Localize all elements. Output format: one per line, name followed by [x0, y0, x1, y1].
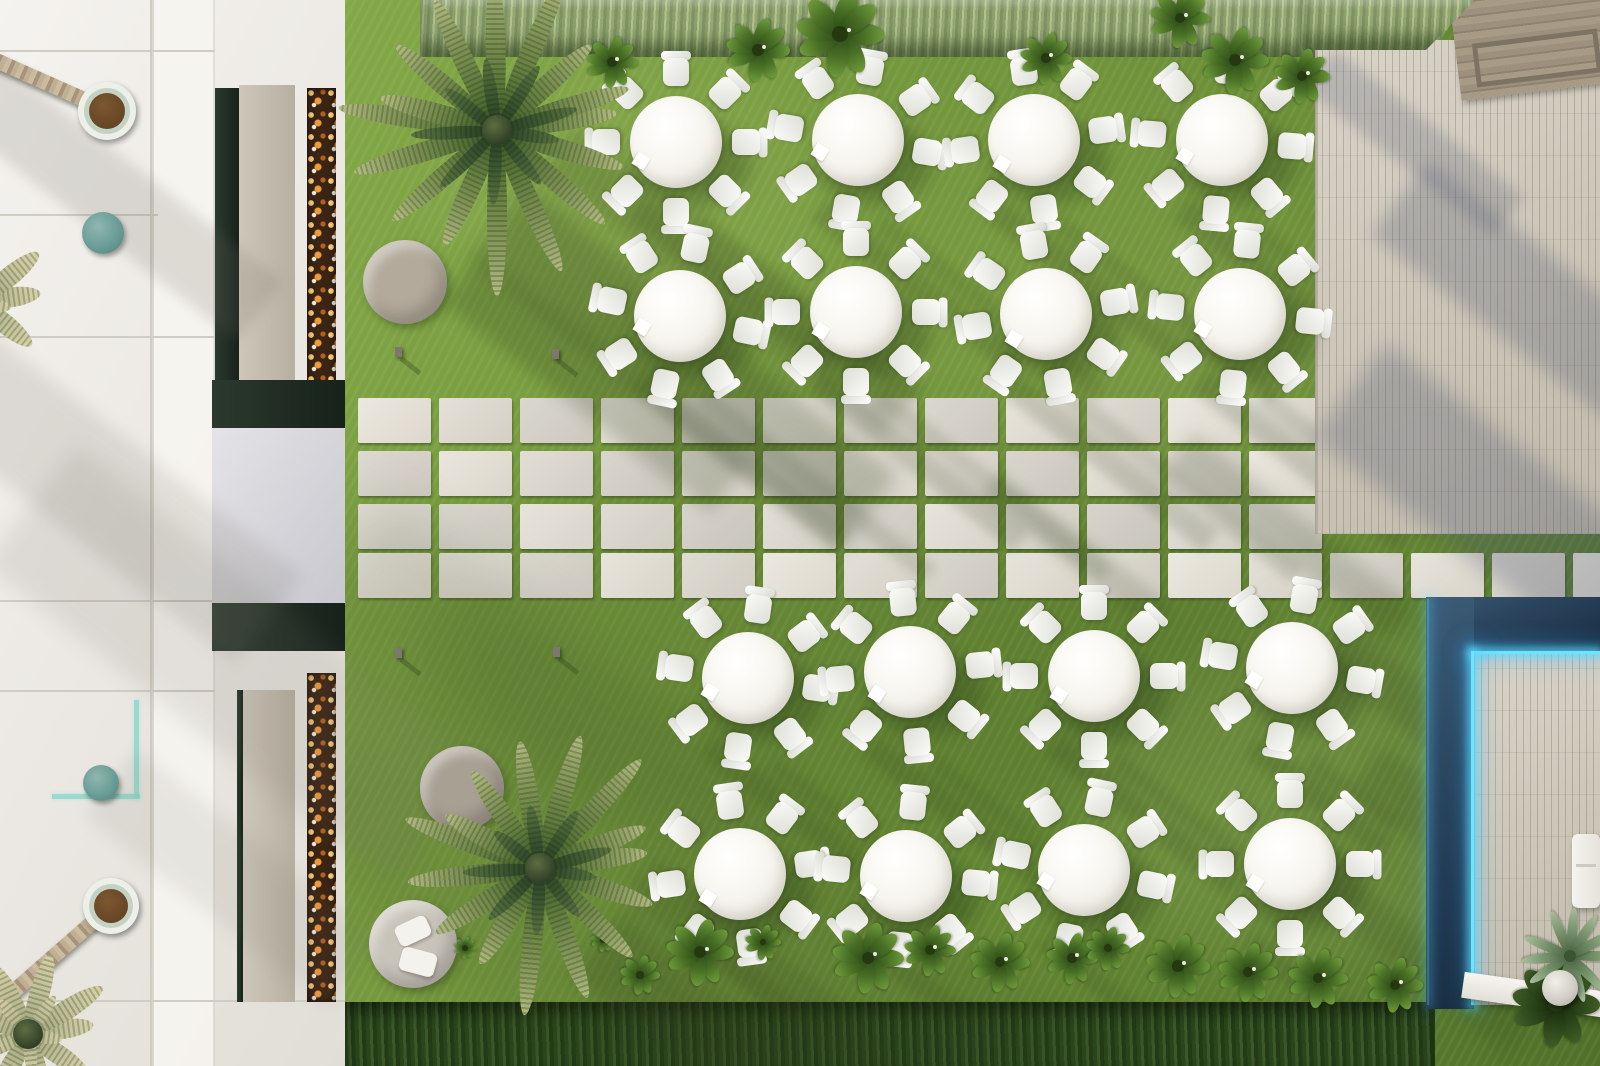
void-slot: [212, 380, 345, 428]
bush-center: [462, 945, 468, 951]
banquet-table: [812, 94, 904, 186]
bush-flower: [1004, 957, 1008, 961]
chair: [1346, 851, 1374, 877]
palm-crown: [13, 1019, 43, 1049]
chair: [1202, 195, 1230, 225]
chair: [663, 198, 689, 226]
stool: [82, 212, 124, 254]
banquet-table: [1244, 818, 1336, 910]
chair: [1010, 663, 1038, 689]
planter-soil: [89, 93, 125, 129]
paver: [358, 451, 431, 496]
chair: [1083, 785, 1114, 818]
bush-flower: [847, 28, 851, 32]
paver: [925, 553, 998, 598]
chair: [1277, 920, 1303, 948]
bush-flower: [1399, 980, 1403, 984]
paver: [439, 398, 512, 443]
chair: [732, 129, 760, 155]
banquet-table: [1038, 824, 1130, 916]
chair: [888, 587, 917, 618]
chair: [1099, 287, 1131, 317]
bush-center: [636, 971, 643, 978]
chair: [911, 137, 943, 167]
chair: [1207, 641, 1239, 671]
paver: [439, 451, 512, 496]
planter-soil: [94, 889, 128, 923]
ground-light: [395, 347, 402, 357]
banquet-table: [864, 626, 956, 718]
chair: [1206, 851, 1234, 877]
chair: [1150, 663, 1178, 689]
chair: [1265, 721, 1295, 753]
chaise-lounge: [1572, 834, 1600, 908]
paver: [520, 451, 593, 496]
chair: [1218, 368, 1247, 399]
paver: [520, 504, 593, 549]
chair: [964, 650, 995, 679]
chair: [772, 299, 800, 325]
pool-led-strip: [1427, 599, 1429, 1005]
chair: [949, 135, 980, 165]
paver: [601, 553, 674, 598]
plant-pot: [1542, 970, 1578, 1006]
chair: [715, 789, 745, 820]
bush-center: [832, 26, 848, 42]
paver: [601, 504, 674, 549]
deck-edge: [1315, 40, 1318, 534]
chair: [1081, 732, 1107, 760]
banquet-table: [634, 270, 726, 362]
chair: [663, 58, 689, 86]
chair: [899, 791, 928, 822]
banquet-table: [1048, 630, 1140, 722]
bush-flower: [1240, 55, 1244, 59]
chaise-seam: [1576, 864, 1596, 867]
chair: [843, 228, 869, 256]
chair: [679, 231, 710, 264]
paver: [1168, 553, 1241, 598]
palm-crown: [482, 115, 512, 145]
chair: [960, 869, 991, 898]
bush-flower: [1306, 71, 1310, 75]
banquet-table: [1176, 94, 1268, 186]
bush-flower: [1252, 967, 1256, 971]
paver: [358, 398, 431, 443]
chair: [743, 593, 773, 624]
bush-center: [1104, 944, 1112, 952]
stool: [83, 765, 119, 801]
paver: [682, 504, 755, 549]
bush-flower: [705, 947, 709, 951]
palm-crown: [525, 853, 555, 883]
banquet-table: [1194, 268, 1286, 360]
ground-light: [553, 647, 560, 657]
banquet-table: [630, 96, 722, 188]
pool-water: [1426, 597, 1474, 1009]
ground-light: [395, 648, 402, 658]
chair: [1137, 120, 1167, 148]
bean-bag: [363, 240, 447, 324]
chair: [825, 665, 856, 694]
chair: [1029, 194, 1059, 225]
bush-flower: [1184, 13, 1188, 17]
chair: [1277, 780, 1303, 808]
wall: [239, 85, 295, 390]
chair: [773, 113, 805, 143]
chair: [961, 311, 993, 341]
fire-pebble-strip: [307, 88, 336, 390]
chair: [903, 726, 932, 757]
bean-bag: [369, 900, 457, 988]
chair: [1289, 583, 1319, 615]
chair: [1088, 115, 1119, 145]
chair: [1277, 132, 1307, 160]
banquet-table: [810, 266, 902, 358]
banquet-table: [702, 632, 794, 724]
chair: [1345, 665, 1377, 695]
paver: [520, 553, 593, 598]
chair: [1019, 229, 1049, 261]
chair: [1081, 592, 1107, 620]
chair: [1294, 307, 1325, 336]
chair: [1155, 292, 1186, 321]
venue-aerial-render: [0, 0, 1600, 1066]
bush-flower: [1322, 973, 1326, 977]
pool-led-strip: [1471, 651, 1600, 654]
shape: [0, 336, 215, 338]
ground-light: [552, 349, 559, 359]
chair: [843, 368, 869, 396]
chair: [723, 732, 753, 763]
succulent-center: [1564, 950, 1576, 962]
banquet-table: [860, 830, 952, 922]
paver: [1087, 504, 1160, 549]
chair: [912, 299, 940, 325]
chair: [1043, 367, 1073, 399]
chair: [663, 653, 694, 683]
chair: [1233, 229, 1262, 260]
pool-led-strip: [1471, 651, 1474, 1005]
banquet-table: [1246, 622, 1338, 714]
chair: [821, 854, 852, 883]
chair: [655, 869, 686, 899]
